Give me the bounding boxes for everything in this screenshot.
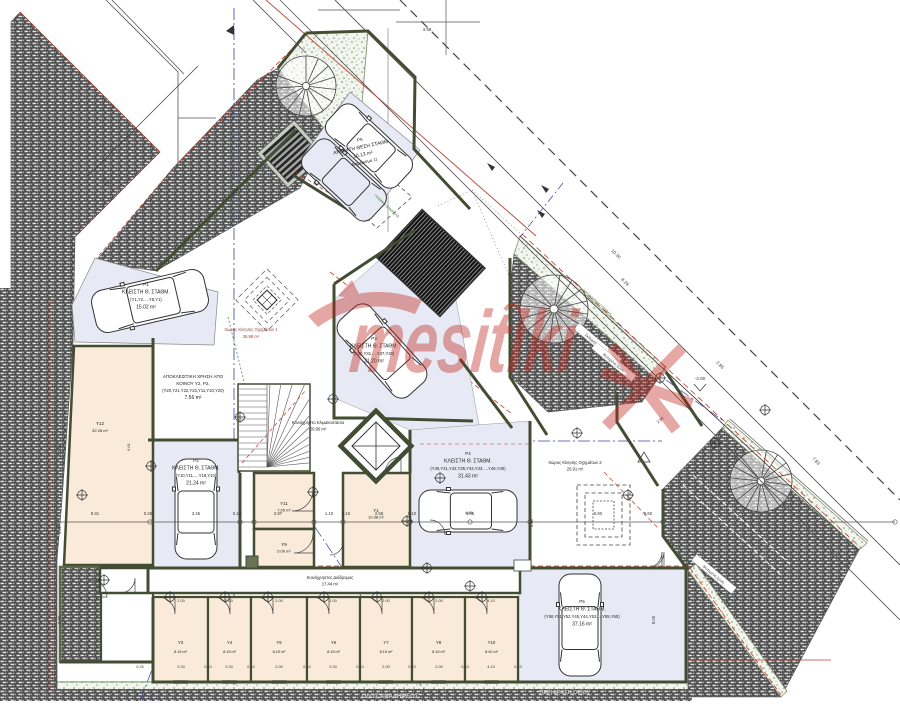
svg-text:20.95 m²: 20.95 m²	[310, 427, 327, 432]
svg-text:4.90: 4.90	[57, 525, 62, 534]
svg-text:(Y20,Y21,Y22,Y23,Y11,Y10,Y20): (Y20,Y21,Y22,Y23,Y11,Y10,Y20)	[162, 388, 224, 393]
svg-text:ΠΕΡΙΦΡΑΞΗ ΟΡΙΟΥ: ΠΕΡΙΦΡΑΞΗ ΟΡΙΟΥ	[540, 690, 591, 696]
svg-text:0.10: 0.10	[342, 511, 351, 516]
svg-text:37.16 m²: 37.16 m²	[572, 622, 592, 628]
svg-text:8.19 m²: 8.19 m²	[223, 650, 237, 654]
svg-text:9.00: 9.00	[651, 615, 656, 624]
svg-text:21.24 m²: 21.24 m²	[186, 481, 206, 487]
svg-text:0.60: 0.60	[644, 511, 653, 516]
svg-text:0.26: 0.26	[144, 511, 153, 516]
svg-text:31.43 m²: 31.43 m²	[458, 474, 478, 480]
svg-text:(Y10,Y11.....Y18,Y10): (Y10,Y11.....Y18,Y10)	[176, 473, 217, 478]
svg-text:7.56 m²: 7.56 m²	[185, 395, 202, 401]
svg-text:Χώρος Κίνησης Οχημάτων 1: Χώρος Κίνησης Οχημάτων 1	[224, 327, 278, 332]
svg-text:15.02 m²: 15.02 m²	[136, 305, 156, 311]
svg-text:Y9: Y9	[281, 542, 287, 547]
svg-text:Y1: Y1	[373, 508, 379, 513]
svg-text:10.30: 10.30	[610, 248, 622, 260]
svg-text:7.83: 7.83	[811, 456, 821, 466]
svg-text:3.45: 3.45	[192, 511, 201, 516]
svg-text:17.44 m²: 17.44 m²	[322, 582, 339, 587]
svg-text:P2: P2	[193, 458, 199, 463]
svg-text:ΟΔΟΣ ΑΝΑΛΗΨΕΩΣ: ΟΔΟΣ ΑΝΑΛΗΨΕΩΣ	[362, 694, 419, 700]
svg-text:2.00: 2.00	[435, 599, 442, 603]
svg-text:0.10: 0.10	[461, 665, 468, 669]
svg-text:0.10: 0.10	[233, 511, 242, 516]
svg-text:Y12: Y12	[96, 421, 105, 426]
svg-text:0.10: 0.10	[408, 665, 415, 669]
svg-text:Y4: Y4	[227, 640, 233, 645]
svg-text:36.99 m²: 36.99 m²	[243, 334, 260, 339]
svg-text:ΚΛΕΙΣΤΗ Θ. ΣΤΑΘΜ.: ΚΛΕΙΣΤΗ Θ. ΣΤΑΘΜ.	[558, 607, 606, 613]
svg-text:ΚΟΙΝΟΥ Y2, P2,: ΚΟΙΝΟΥ Y2, P2,	[176, 381, 209, 386]
svg-text:5.06 m²: 5.06 m²	[277, 549, 291, 554]
svg-text:0.10: 0.10	[204, 665, 211, 669]
svg-text:8.19 m²: 8.19 m²	[380, 650, 394, 654]
svg-text:2.00: 2.00	[435, 665, 442, 669]
svg-text:Y10: Y10	[488, 640, 496, 645]
svg-text:8.19 m²: 8.19 m²	[327, 650, 341, 654]
svg-text:10.63: 10.63	[57, 444, 62, 455]
svg-text:Κοινόχρηστο Κλιμακοστάσιο: Κοινόχρηστο Κλιμακοστάσιο	[292, 420, 345, 425]
svg-text:Κοινόχρηστος Διάδρομος: Κοινόχρηστος Διάδρομος	[307, 575, 354, 580]
svg-text:7.05 m²: 7.05 m²	[277, 508, 291, 513]
svg-text:2.00: 2.00	[382, 599, 389, 603]
svg-text:2.00: 2.00	[275, 599, 282, 603]
svg-text:2.00: 2.00	[329, 599, 336, 603]
svg-text:(Y40,Y41,Y42,Y35,Y34,Y43.....Y: (Y40,Y41,Y42,Y35,Y34,Y43.....Y46,Y40)	[430, 466, 506, 471]
svg-text:32.28 m²: 32.28 m²	[92, 428, 108, 433]
svg-text:Y7: Y7	[383, 640, 389, 645]
svg-text:2.00: 2.00	[329, 665, 336, 669]
svg-text:(Y1,Y2.....Y8,Y1): (Y1,Y2.....Y8,Y1)	[130, 297, 162, 302]
svg-text:3.98: 3.98	[423, 27, 432, 32]
svg-text:4.85: 4.85	[465, 510, 474, 515]
svg-text:P4: P4	[465, 451, 471, 456]
svg-text:2.00: 2.00	[177, 665, 184, 669]
svg-text:1.10: 1.10	[325, 511, 334, 516]
svg-text:6.90: 6.90	[529, 518, 534, 527]
svg-text:2.85: 2.85	[715, 360, 725, 370]
svg-text:10.38 m²: 10.38 m²	[368, 515, 384, 520]
svg-text:Y11: Y11	[280, 501, 288, 506]
svg-text:ΚΛΕΙΣΤΗ Θ. ΣΤΑΘΜ.: ΚΛΕΙΣΤΗ Θ. ΣΤΑΘΜ.	[172, 466, 220, 472]
svg-text:Y5: Y5	[276, 640, 282, 645]
svg-text:25.91 m²: 25.91 m²	[567, 467, 584, 472]
svg-text:0.10: 0.10	[356, 665, 363, 669]
svg-text:0.25: 0.25	[136, 665, 143, 669]
svg-text:Y8: Y8	[436, 640, 442, 645]
svg-text:ΚΛΕΙΣΤΗ Θ. ΣΤΑΘΜ.: ΚΛΕΙΣΤΗ Θ. ΣΤΑΘΜ.	[122, 290, 170, 296]
svg-text:0.10: 0.10	[408, 511, 417, 516]
svg-text:-2.00: -2.00	[695, 376, 706, 381]
svg-text:9.31: 9.31	[91, 511, 100, 516]
svg-text:3.25: 3.25	[57, 615, 62, 624]
svg-text:Χώρος Κίνησης Οχημάτων 2: Χώρος Κίνησης Οχημάτων 2	[548, 460, 602, 465]
svg-text:5.90: 5.90	[594, 511, 603, 516]
svg-text:0.10: 0.10	[514, 665, 521, 669]
svg-text:8.40 m²: 8.40 m²	[485, 650, 499, 654]
svg-text:0.10: 0.10	[247, 665, 254, 669]
svg-text:0.10: 0.10	[303, 665, 310, 669]
svg-text:mesitiki: mesitiki	[346, 292, 583, 391]
svg-text:2.00: 2.00	[177, 599, 184, 603]
svg-text:(Y50,Y51,Y52,Y45,Y44,Y53.....Y: (Y50,Y51,Y52,Y45,Y44,Y53.....Y55,Y50)	[544, 614, 620, 619]
svg-text:P5: P5	[579, 599, 585, 604]
svg-text:ΚΛΕΙΣΤΗ Θ. ΣΤΑΘΜ.: ΚΛΕΙΣΤΗ Θ. ΣΤΑΘΜ.	[444, 459, 492, 465]
svg-text:2.00: 2.00	[275, 665, 282, 669]
svg-text:8.19 m²: 8.19 m²	[273, 650, 287, 654]
svg-text:6.61: 6.61	[126, 442, 131, 451]
svg-text:ΑΠΟΚΛΕΙΣΤΙΚΗ ΧΡΗΣΗ ΑΠΟ: ΑΠΟΚΛΕΙΣΤΙΚΗ ΧΡΗΣΗ ΑΠΟ	[163, 374, 224, 379]
svg-text:8.28: 8.28	[620, 277, 630, 287]
svg-text:2.00: 2.00	[225, 665, 232, 669]
svg-text:4.10: 4.10	[487, 665, 494, 669]
svg-text:8.19 m²: 8.19 m²	[174, 650, 188, 654]
svg-text:Y6: Y6	[331, 640, 337, 645]
svg-text:P1: P1	[143, 282, 149, 287]
svg-text:2.00: 2.00	[382, 665, 389, 669]
svg-text:4.10: 4.10	[487, 599, 494, 603]
svg-text:8.19 m²: 8.19 m²	[432, 650, 446, 654]
svg-text:Y3: Y3	[178, 640, 184, 645]
